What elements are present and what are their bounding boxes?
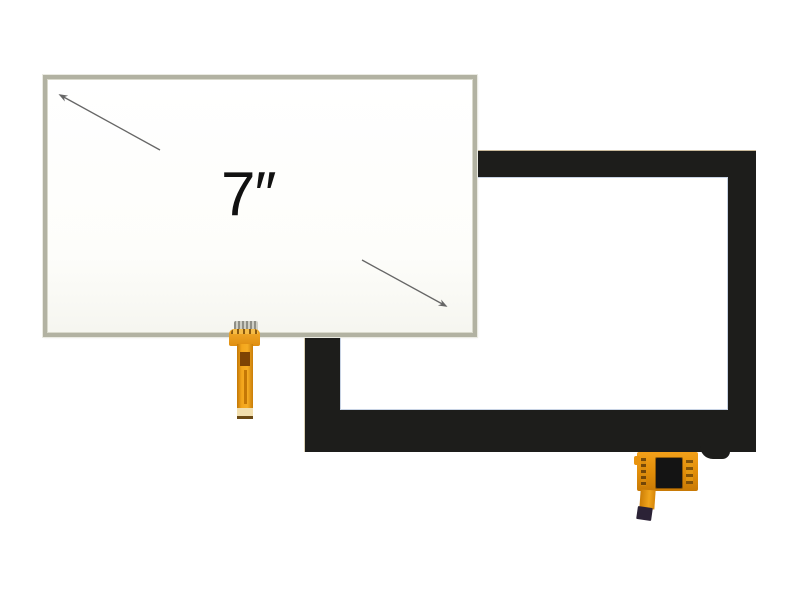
flex-trace-marks [641,458,646,486]
flex-trace-marks [686,460,693,484]
flex-circuit-pad [637,452,698,491]
size-label: 7″ [221,164,275,226]
flex-nub [634,456,640,465]
ribbon-pad [240,352,250,366]
controller-chip [656,458,682,488]
ribbon-trace [244,370,247,404]
capacitive-flex-connector [637,451,699,523]
bezel-notch [700,446,730,459]
ribbon-end-contact [237,408,253,419]
connector-teeth [231,329,258,334]
resistive-flex-connector [229,318,261,420]
flex-tail-contact [636,506,653,521]
flex-ribbon [237,344,253,408]
touch-panel-product-photo: 7″ [0,0,800,600]
